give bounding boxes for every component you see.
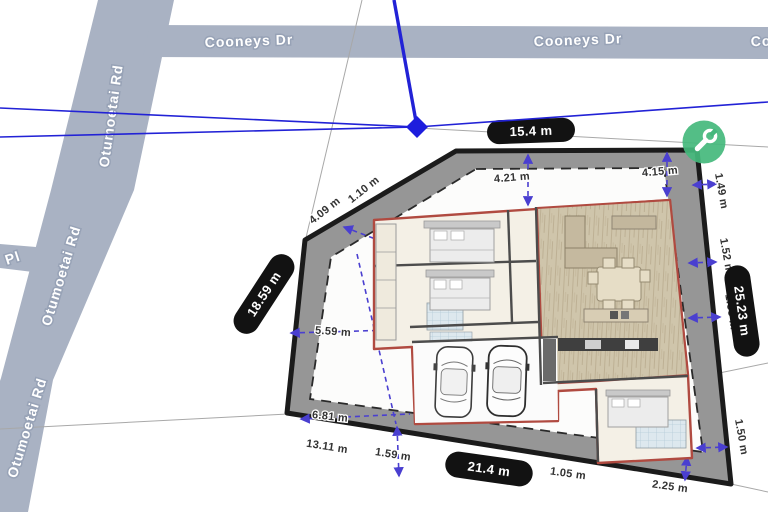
site-plan-map: 4.09 m 1.10 m 4.21 m 4.15 m 1.49 m 1.52 … — [0, 0, 768, 512]
tv-unit — [612, 216, 656, 229]
road-label-cooneys-3: Cooneys Dr — [750, 30, 768, 49]
setback-left-mid: 5.59 m — [315, 325, 352, 339]
survey-line-left-upper — [0, 108, 417, 127]
setback-bottom-mid: 1.59 m — [374, 446, 411, 463]
setback-right-upper: 1.49 m — [712, 172, 730, 210]
survey-line-vertical — [394, 0, 417, 127]
road-label-cooneys-1: Cooneys Dr — [204, 31, 293, 50]
garage-floor — [413, 338, 558, 423]
survey-line-left-lower — [0, 127, 417, 137]
wardrobe-strip — [376, 224, 396, 340]
pill-bottom-boundary[interactable]: 21.4 m — [444, 450, 535, 488]
setback-right-lower: 1.50 m — [732, 418, 750, 456]
pill-top-value: 15.4 m — [509, 123, 552, 139]
bed-top — [424, 221, 500, 262]
car-right — [484, 345, 530, 416]
setback-bottom-left: 13.11 m — [305, 438, 348, 456]
setback-bottom-right-a: 1.05 m — [549, 465, 586, 482]
measure-tool-button[interactable] — [683, 121, 726, 164]
setback-left-lower: 6.81 m — [311, 409, 348, 425]
car-left — [432, 346, 476, 417]
survey-line-right — [417, 102, 768, 127]
setback-bottom-right-b: 2.25 m — [651, 478, 688, 495]
pill-left-boundary[interactable]: 18.59 m — [229, 249, 300, 339]
road-label-cooneys-2: Cooneys Dr — [533, 30, 622, 49]
bed-bottom-right — [606, 390, 670, 427]
map-canvas: 4.09 m 1.10 m 4.21 m 4.15 m 1.49 m 1.52 … — [0, 0, 768, 512]
survey-vertex-handle[interactable] — [406, 116, 428, 138]
bed-middle — [426, 270, 494, 310]
